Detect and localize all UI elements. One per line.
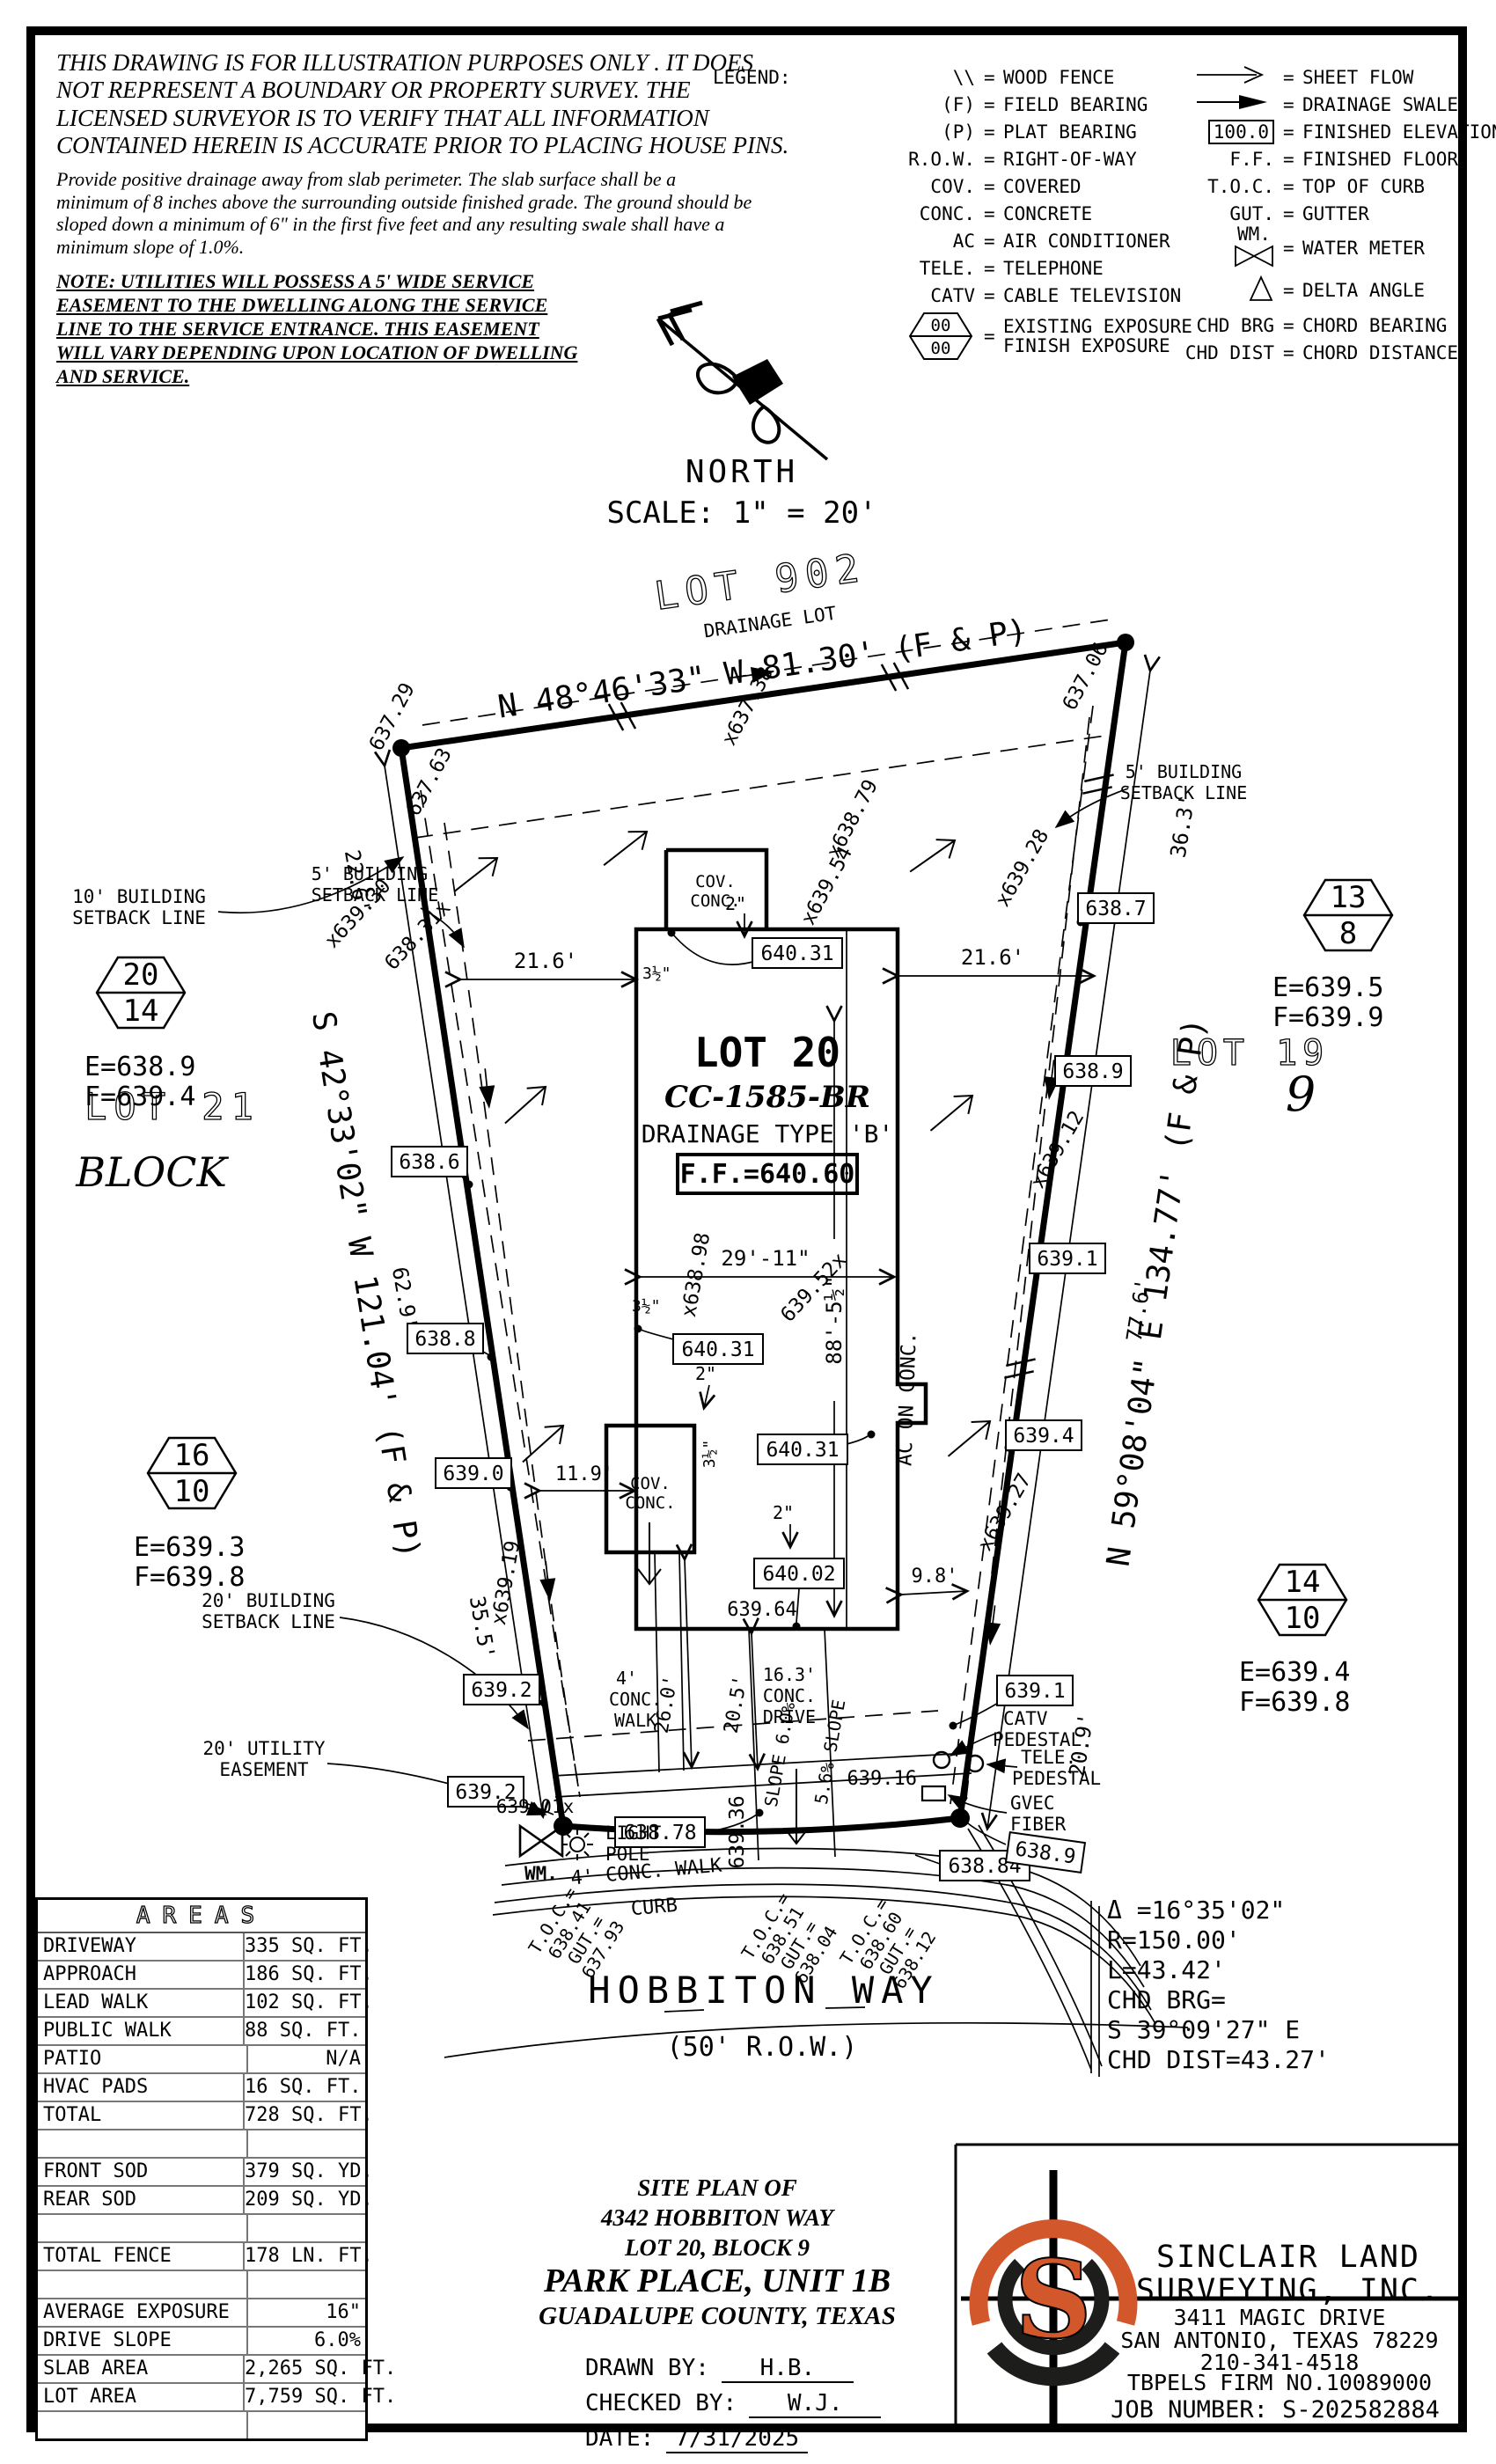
curve-line: CHD BRG= — [1107, 1985, 1226, 2014]
area-value — [246, 2130, 365, 2157]
hex-f-value: F=639.8 — [1239, 1687, 1350, 1718]
area-label — [38, 2130, 246, 2157]
dim-62-9: 62.9' — [387, 1265, 422, 1332]
dim-11-9: 11.9' — [555, 1463, 613, 1485]
elev-box: 639.4 — [1013, 1425, 1074, 1448]
areas-table-title: AREAS — [38, 1900, 365, 1933]
spot-elev: 639.64 — [727, 1599, 796, 1621]
ac-on-conc: AC ON CONC. — [893, 1331, 920, 1466]
cov-conc-bottom: COV. — [630, 1474, 671, 1493]
label-line: SETBACK LINE — [72, 907, 206, 928]
curve-line: L=43.42' — [1107, 1955, 1226, 1984]
label-line: EASEMENT — [219, 1759, 309, 1780]
conc-drive-label: 16.3' — [763, 1664, 816, 1685]
spot-elev: 639.16 — [847, 1768, 917, 1790]
north-label: NORTH — [686, 454, 798, 490]
label-line: 20' UTILITY — [202, 1738, 325, 1759]
checked-by-value: W.J. — [749, 2390, 881, 2418]
hex-e-value: E=639.4 — [1239, 1657, 1350, 1688]
area-value: 102 SQ. FT. — [243, 1990, 365, 2016]
area-value: 335 SQ. FT. — [243, 1933, 365, 1960]
site-plan-sheet: THIS DRAWING IS FOR ILLUSTRATION PURPOSE… — [0, 0, 1496, 2464]
toc-group-1: T.O.C.= 638.41 GUT.= 637.93 — [524, 1883, 629, 1982]
area-label — [38, 2271, 246, 2298]
title-block: SITE PLAN OF 4342 HOBBITON WAY LOT 20, B… — [497, 2174, 937, 2460]
tele-label: TELE. — [1021, 1747, 1076, 1768]
elev-box: 640.31 — [760, 942, 833, 965]
cov-conc-top: CONC. — [690, 891, 740, 911]
street-name: HOBBITON WAY — [588, 1969, 939, 2012]
firm-tbpels: TBPELS FIRM NO.10089000 — [1092, 2370, 1467, 2395]
dim-9-8: 9.8' — [912, 1566, 958, 1588]
area-value: 178 LN. FT. — [243, 2243, 365, 2270]
hex-finish: 10 — [174, 1474, 210, 1509]
gvec-fiber-icon — [922, 1786, 945, 1800]
area-value: 16 SQ. FT. — [243, 2074, 365, 2101]
spot-elev: 639.36 — [726, 1795, 749, 1868]
spot-elevations: 637.29 637.63 x637.38 637.06 x638.79 x63… — [320, 639, 1112, 1869]
hex-finish: 14 — [123, 994, 159, 1029]
area-label: DRIVEWAY — [38, 1933, 243, 1960]
firm-address: 3411 MAGIC DRIVE — [1092, 2305, 1467, 2330]
dim-3-5in: 3½" — [642, 964, 671, 983]
dim-3-5in: 3½" — [632, 1297, 661, 1316]
exposure-hex-14-10: 14 10 E=639.4 F=639.8 — [1239, 1565, 1350, 1718]
spot-elev: x638.79 — [823, 776, 883, 862]
area-value: N/A — [246, 2046, 365, 2072]
area-value — [246, 2412, 365, 2438]
spot-elev: 637.29 — [365, 679, 420, 755]
elev-box: 640.02 — [762, 1563, 835, 1586]
dim-21-6-right: 21.6' — [961, 945, 1024, 970]
tele-label: PEDESTAL — [1012, 1768, 1101, 1789]
cov-conc-bottom: CONC. — [625, 1493, 675, 1513]
area-value: 2,265 SQ. FT. — [243, 2356, 365, 2382]
catv-label: CATV — [1003, 1708, 1048, 1729]
elev-box: 639.0 — [443, 1463, 503, 1485]
elev-box: 640.31 — [681, 1338, 754, 1361]
hex-finish: 8 — [1339, 916, 1357, 951]
firm-job-number: JOB NUMBER: S-202582884 — [1083, 2396, 1467, 2424]
dim-2in: 2" — [695, 1363, 716, 1384]
hex-finish: 10 — [1285, 1601, 1321, 1636]
area-label: HVAC PADS — [38, 2074, 243, 2101]
elev-box: 638.6 — [399, 1151, 459, 1174]
label-line: 10' BUILDING — [72, 886, 206, 907]
elev-box: 639.2 — [471, 1679, 532, 1702]
gvec-label: GVEC — [1010, 1793, 1055, 1814]
lot-20-title: LOT 20 — [694, 1029, 840, 1076]
elev-box: 638.9 — [1062, 1060, 1123, 1083]
area-value: 7,759 SQ. FT. — [243, 2384, 365, 2410]
checked-by-label: CHECKED BY: — [585, 2390, 737, 2416]
scale-label: SCALE: 1" = 20' — [606, 495, 876, 531]
elev-box: 640.31 — [766, 1439, 839, 1462]
drainage-type: DRAINAGE TYPE 'B' — [642, 1119, 894, 1148]
curve-line: CHD DIST=43.27' — [1107, 2045, 1330, 2074]
drawn-by-value: H.B. — [722, 2355, 854, 2383]
area-label: LOT AREA — [38, 2384, 243, 2410]
elev-box: 639.1 — [1004, 1680, 1065, 1703]
lot-corner-pin — [392, 739, 410, 757]
area-label: AVERAGE EXPOSURE — [38, 2299, 246, 2326]
hex-existing: 16 — [174, 1438, 210, 1473]
spot-elev: 637.63 — [402, 744, 457, 820]
dim-3-5in: 3½" — [700, 1440, 719, 1469]
drawn-by-label: DRAWN BY: — [585, 2355, 709, 2381]
area-value: 186 SQ. FT. — [243, 1962, 365, 1988]
slope-label: 5.6% SLOPE — [810, 1698, 850, 1806]
area-label: PUBLIC WALK — [38, 2018, 243, 2044]
hex-f-value: F=639.4 — [84, 1082, 195, 1112]
curve-line: R=150.00' — [1107, 1925, 1241, 1954]
area-value: 728 SQ. FT. — [243, 2102, 365, 2129]
area-label: LEAD WALK — [38, 1990, 243, 2016]
dim-21-6-left: 21.6' — [514, 949, 577, 973]
label-line: 5' BUILDING — [312, 863, 428, 884]
title-county: GUADALUPE COUNTY, TEXAS — [497, 2301, 937, 2332]
plan-number: CC-1585-BR — [664, 1080, 870, 1115]
spot-elev: x639.28 — [991, 825, 1053, 911]
area-label: REAR SOD — [38, 2187, 243, 2213]
wm-label: WM. — [524, 1863, 558, 1884]
hex-existing: 20 — [123, 957, 159, 993]
dim-20-5: 20.5' — [721, 1674, 752, 1735]
exposure-hex-16-10: 16 10 E=639.3 F=639.8 — [134, 1438, 245, 1593]
area-label: FRONT SOD — [38, 2159, 243, 2185]
area-value: 88 SQ. FT. — [243, 2018, 365, 2044]
area-value: 16" — [246, 2299, 365, 2326]
hex-existing: 13 — [1331, 880, 1367, 915]
elev-box: 638.8 — [414, 1328, 475, 1351]
area-value — [246, 2215, 365, 2241]
date-label: DATE: — [585, 2425, 654, 2452]
lot-corner-pin — [1117, 634, 1134, 651]
label-line: SETBACK LINE — [202, 1611, 335, 1632]
block-label-left: BLOCK — [75, 1148, 229, 1196]
hex-f-value: F=639.8 — [134, 1562, 245, 1593]
title-subdivision: PARK PLACE, UNIT 1B — [497, 2262, 937, 2301]
walk-upper-label: WALK — [614, 1710, 656, 1731]
label-line: 20' BUILDING — [202, 1590, 335, 1611]
spot-elev: x639.19 — [488, 1539, 524, 1627]
street-row: (50' R.O.W.) — [667, 2032, 858, 2063]
title-address: 4342 HOBBITON WAY — [497, 2204, 937, 2233]
lot-boundary — [401, 642, 1126, 1832]
spot-elev: x639.54 — [797, 843, 857, 929]
hex-f-value: F=639.9 — [1272, 1002, 1383, 1033]
dim-29-11: 29'-11" — [721, 1246, 810, 1271]
curve-data-block: Δ =16°35'02" R=150.00' L=43.42' CHD BRG=… — [1091, 1896, 1330, 2077]
area-value: 6.0% — [246, 2328, 365, 2354]
curve-line: S 39°09'27" E — [1107, 2015, 1300, 2044]
title-line: SITE PLAN OF — [497, 2174, 937, 2204]
area-label: SLAB AREA — [38, 2356, 243, 2382]
area-value: 379 SQ. YD. — [243, 2159, 365, 2185]
firm-name: SINCLAIR LAND — [1112, 2240, 1464, 2275]
bearing-east-line: N 59°08'04" E 134.77' (F & P) — [1101, 1016, 1214, 1568]
hex-e-value: E=639.5 — [1272, 972, 1383, 1003]
gvec-label: FIBER — [1010, 1814, 1067, 1835]
area-label: PATIO — [38, 2046, 246, 2072]
exposure-hex-20-14: 20 14 E=638.9 F=639.4 — [84, 957, 195, 1112]
hex-e-value: E=639.3 — [134, 1532, 245, 1563]
label-line: 5' BUILDING — [1126, 761, 1242, 782]
area-label: TOTAL FENCE — [38, 2243, 243, 2270]
label-line: SETBACK LINE — [1120, 782, 1248, 803]
block-number-right: 9 — [1286, 1067, 1316, 1122]
finished-floor-value: F.F.=640.60 — [680, 1159, 855, 1190]
curb-label: CURB — [630, 1895, 678, 1921]
dim-2in: 2" — [773, 1502, 794, 1523]
lot-902-label: LOT 902 — [652, 546, 869, 620]
elev-box: 639.1 — [1037, 1248, 1097, 1271]
area-label: TOTAL — [38, 2102, 243, 2129]
walk-upper-label: CONC. — [609, 1689, 662, 1710]
elev-box: 638.7 — [1085, 898, 1146, 920]
setback-line-5ft-left — [421, 790, 580, 1797]
firm-name: SURVEYING, INC. — [1112, 2273, 1464, 2308]
dim-line — [901, 1591, 967, 1595]
north-arrow-icon — [658, 303, 827, 459]
area-label: APPROACH — [38, 1962, 243, 1988]
curve-line: Δ =16°35'02" — [1107, 1896, 1285, 1925]
area-label — [38, 2215, 246, 2241]
spot-elev: 639.01x — [496, 1796, 575, 1817]
area-label — [38, 2412, 246, 2438]
hex-existing: 14 — [1285, 1565, 1321, 1600]
water-meter-icon — [520, 1826, 562, 1856]
light-pole-icon — [561, 1829, 593, 1860]
date-value: 7/31/2025 — [666, 2425, 808, 2453]
title-lot-block: LOT 20, BLOCK 9 — [497, 2233, 937, 2263]
area-value: 209 SQ. YD. — [243, 2187, 365, 2213]
firm-block: SINCLAIR LAND SURVEYING, INC. 3411 MAGIC… — [956, 2145, 1467, 2432]
area-value — [246, 2271, 365, 2298]
areas-table: AREAS DRIVEWAY335 SQ. FT. APPROACH186 SQ… — [35, 1897, 368, 2441]
area-label: DRIVE SLOPE — [38, 2328, 246, 2354]
setback-line-10ft — [415, 736, 1105, 838]
hex-e-value: E=638.9 — [84, 1052, 195, 1082]
cov-conc-top: COV. — [695, 872, 736, 891]
dim-line — [685, 1559, 692, 1767]
lot-corner-pin — [950, 1808, 970, 1828]
spot-elev: x638.98 — [678, 1231, 715, 1319]
light-pole-label: LIGHT — [605, 1822, 662, 1844]
exposure-hex-13-8: 13 8 E=639.5 F=639.9 — [1272, 880, 1392, 1033]
walk-upper-label: 4' — [616, 1668, 637, 1689]
